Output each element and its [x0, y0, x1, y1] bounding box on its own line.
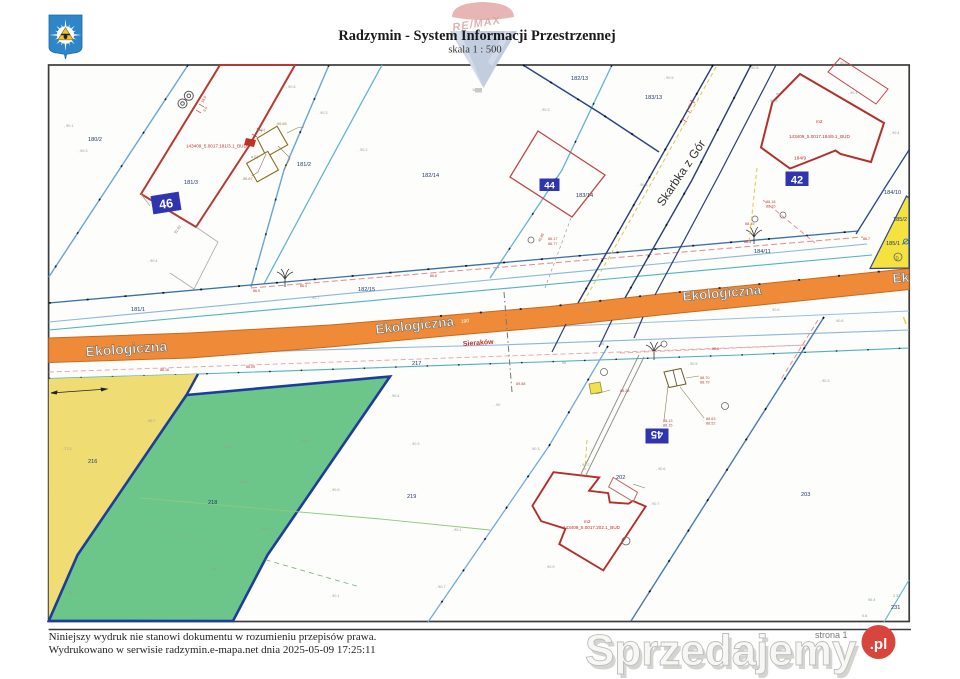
svg-text:, 90: , 90 — [210, 567, 216, 571]
svg-text:143409_5.0017.184/9.1_BUD: 143409_5.0017.184/9.1_BUD — [789, 134, 850, 139]
svg-text:86.4: 86.4 — [300, 284, 307, 288]
svg-text:88.70: 88.70 — [700, 376, 710, 380]
svg-text:, 90.1: , 90.1 — [452, 528, 462, 532]
svg-text:184/9: 184/9 — [794, 156, 806, 162]
svg-text:44: 44 — [544, 181, 555, 192]
svg-text:, 90.8: , 90.8 — [300, 439, 310, 443]
svg-text:217: 217 — [412, 361, 421, 367]
svg-text:, 90.8: , 90.8 — [749, 66, 759, 70]
svg-text:, 90.8: , 90.8 — [834, 319, 844, 323]
svg-text:0.6: 0.6 — [862, 614, 867, 618]
svg-text:, 90.6: , 90.6 — [222, 445, 232, 449]
svg-text:,90.65: ,90.65 — [276, 122, 287, 126]
svg-text:, 90.2: , 90.2 — [358, 148, 368, 152]
svg-text:181/1: 181/1 — [131, 307, 145, 313]
svg-text:88.63: 88.63 — [706, 417, 716, 421]
svg-text:203: 203 — [801, 492, 810, 498]
svg-text:90.4: 90.4 — [440, 330, 447, 334]
svg-text:, 90.4: , 90.4 — [148, 259, 158, 263]
svg-text:, 90.3: , 90.3 — [260, 527, 270, 531]
svg-text:86.09: 86.09 — [246, 365, 255, 369]
svg-text:, 90.7: , 90.7 — [146, 419, 156, 423]
svg-text:Radzymin - System Informacji P: Radzymin - System Informacji Przestrzenn… — [338, 28, 615, 44]
svg-text:45: 45 — [651, 428, 663, 440]
svg-text:, 90.3: , 90.3 — [78, 149, 88, 153]
svg-text:96: 96 — [562, 361, 566, 365]
svg-text:, 90.8: , 90.8 — [638, 183, 648, 187]
svg-text:, 90.7: , 90.7 — [310, 296, 320, 300]
svg-text:Ek: Ek — [892, 270, 910, 286]
svg-text:, 90.4: , 90.4 — [390, 394, 400, 398]
svg-text:, 90.8: , 90.8 — [583, 308, 593, 312]
svg-text:86.17: 86.17 — [548, 237, 558, 241]
svg-text:, 90.6: , 90.6 — [238, 480, 248, 484]
svg-text:88.52: 88.52 — [706, 422, 716, 426]
svg-text:2.31: 2.31 — [893, 594, 900, 598]
svg-text:Niniejszy wydruk nie stanowi d: Niniejszy wydruk nie stanowi dokumentu w… — [49, 631, 377, 643]
svg-text:skala 1 : 500: skala 1 : 500 — [448, 45, 501, 56]
svg-text:, 90.6: , 90.6 — [286, 85, 296, 89]
svg-text:Sprzedajemy: Sprzedajemy — [585, 626, 857, 675]
svg-text:216: 216 — [88, 459, 97, 465]
svg-text:, 90.3: , 90.3 — [768, 99, 778, 103]
svg-text:184/10: 184/10 — [884, 190, 901, 196]
svg-text:182/14: 182/14 — [422, 173, 439, 179]
svg-text:m: m — [776, 92, 779, 96]
svg-text:, 90.4: , 90.4 — [890, 131, 900, 135]
svg-text:96: 96 — [600, 342, 604, 346]
svg-text:a (1): a (1) — [258, 128, 265, 132]
svg-text:185/2: 185/2 — [893, 217, 907, 223]
svg-text:86.9: 86.9 — [253, 289, 260, 293]
svg-text:185/1: 185/1 — [886, 241, 900, 247]
svg-text:, 90.3: , 90.3 — [410, 442, 420, 446]
svg-text:m2: m2 — [816, 119, 823, 124]
svg-text:, 90.7: , 90.7 — [436, 585, 446, 589]
svg-text:, 90.1: , 90.1 — [848, 91, 858, 95]
svg-text:, 90.6: , 90.6 — [656, 467, 666, 471]
svg-text:88.45: 88.45 — [745, 222, 755, 226]
svg-text:, 90.5: , 90.5 — [688, 362, 698, 366]
svg-text:86.16: 86.16 — [160, 368, 169, 372]
svg-text:, 90: , 90 — [494, 403, 500, 407]
svg-text:, 90.6: , 90.6 — [852, 292, 862, 296]
svg-text:, 90.1: , 90.1 — [64, 124, 74, 128]
svg-text:, 90.9: , 90.9 — [545, 565, 555, 569]
svg-text:218: 218 — [208, 500, 217, 506]
svg-text:143409_5.0017.181/3.1_BUD: 143409_5.0017.181/3.1_BUD — [186, 144, 247, 149]
svg-text:88.28: 88.28 — [620, 389, 630, 393]
svg-text:, 90.3: , 90.3 — [540, 108, 550, 112]
svg-text:.pl: .pl — [870, 636, 888, 653]
svg-text:, 90.3: , 90.3 — [318, 111, 328, 115]
svg-text:m2: m2 — [584, 519, 591, 524]
svg-text:a (1): a (1) — [251, 155, 258, 159]
svg-text:190: 190 — [461, 318, 470, 325]
svg-text:, 90.1: , 90.1 — [330, 594, 340, 598]
svg-text:182/15: 182/15 — [358, 287, 375, 293]
svg-text:46: 46 — [158, 196, 174, 212]
svg-text:, 90.6: , 90.6 — [770, 308, 780, 312]
svg-text:181/2: 181/2 — [297, 162, 311, 168]
svg-text:219: 219 — [407, 494, 416, 500]
svg-text:88.18: 88.18 — [766, 200, 776, 204]
svg-text:183/14: 183/14 — [576, 193, 593, 199]
svg-text:184/11: 184/11 — [754, 249, 771, 255]
svg-text:88.79: 88.79 — [700, 381, 710, 385]
svg-text:Wydrukowano w serwisie radzymi: Wydrukowano w serwisie radzymin.e-mapa.n… — [49, 644, 376, 656]
svg-text:,90.67: ,90.67 — [242, 177, 253, 181]
svg-text:88.13: 88.13 — [663, 419, 673, 423]
svg-text:, 90.3: , 90.3 — [820, 379, 830, 383]
svg-text:86.4: 86.4 — [744, 240, 751, 244]
svg-text:181/3: 181/3 — [184, 180, 198, 186]
svg-text:, 90.5: , 90.5 — [664, 76, 674, 80]
svg-text:, 90.2: , 90.2 — [580, 463, 590, 467]
svg-text:, 97.2: , 97.2 — [66, 591, 76, 595]
svg-text:143409_5.0017.202.1_BUD: 143409_5.0017.202.1_BUD — [563, 525, 621, 530]
svg-text:86.7: 86.7 — [863, 237, 870, 241]
svg-text:88.15: 88.15 — [663, 424, 673, 428]
svg-text:183/13: 183/13 — [645, 95, 662, 101]
svg-text:, 90.7: , 90.7 — [650, 502, 660, 506]
svg-text:180/2: 180/2 — [88, 137, 102, 143]
svg-text:, 90.5: , 90.5 — [330, 488, 340, 492]
svg-text:182/13: 182/13 — [571, 76, 588, 82]
svg-text:89.88: 89.88 — [516, 382, 526, 386]
svg-text:231: 231 — [891, 605, 900, 611]
svg-text:, 90.3: , 90.3 — [530, 447, 540, 451]
svg-text:90.4: 90.4 — [868, 598, 875, 602]
svg-text:, 77.2: , 77.2 — [62, 447, 72, 451]
svg-text:86.6: 86.6 — [430, 274, 437, 278]
svg-text:, 90.6: , 90.6 — [838, 61, 848, 65]
svg-text:86.77: 86.77 — [548, 242, 558, 246]
svg-text:42: 42 — [791, 175, 803, 187]
svg-text:202: 202 — [616, 475, 625, 481]
